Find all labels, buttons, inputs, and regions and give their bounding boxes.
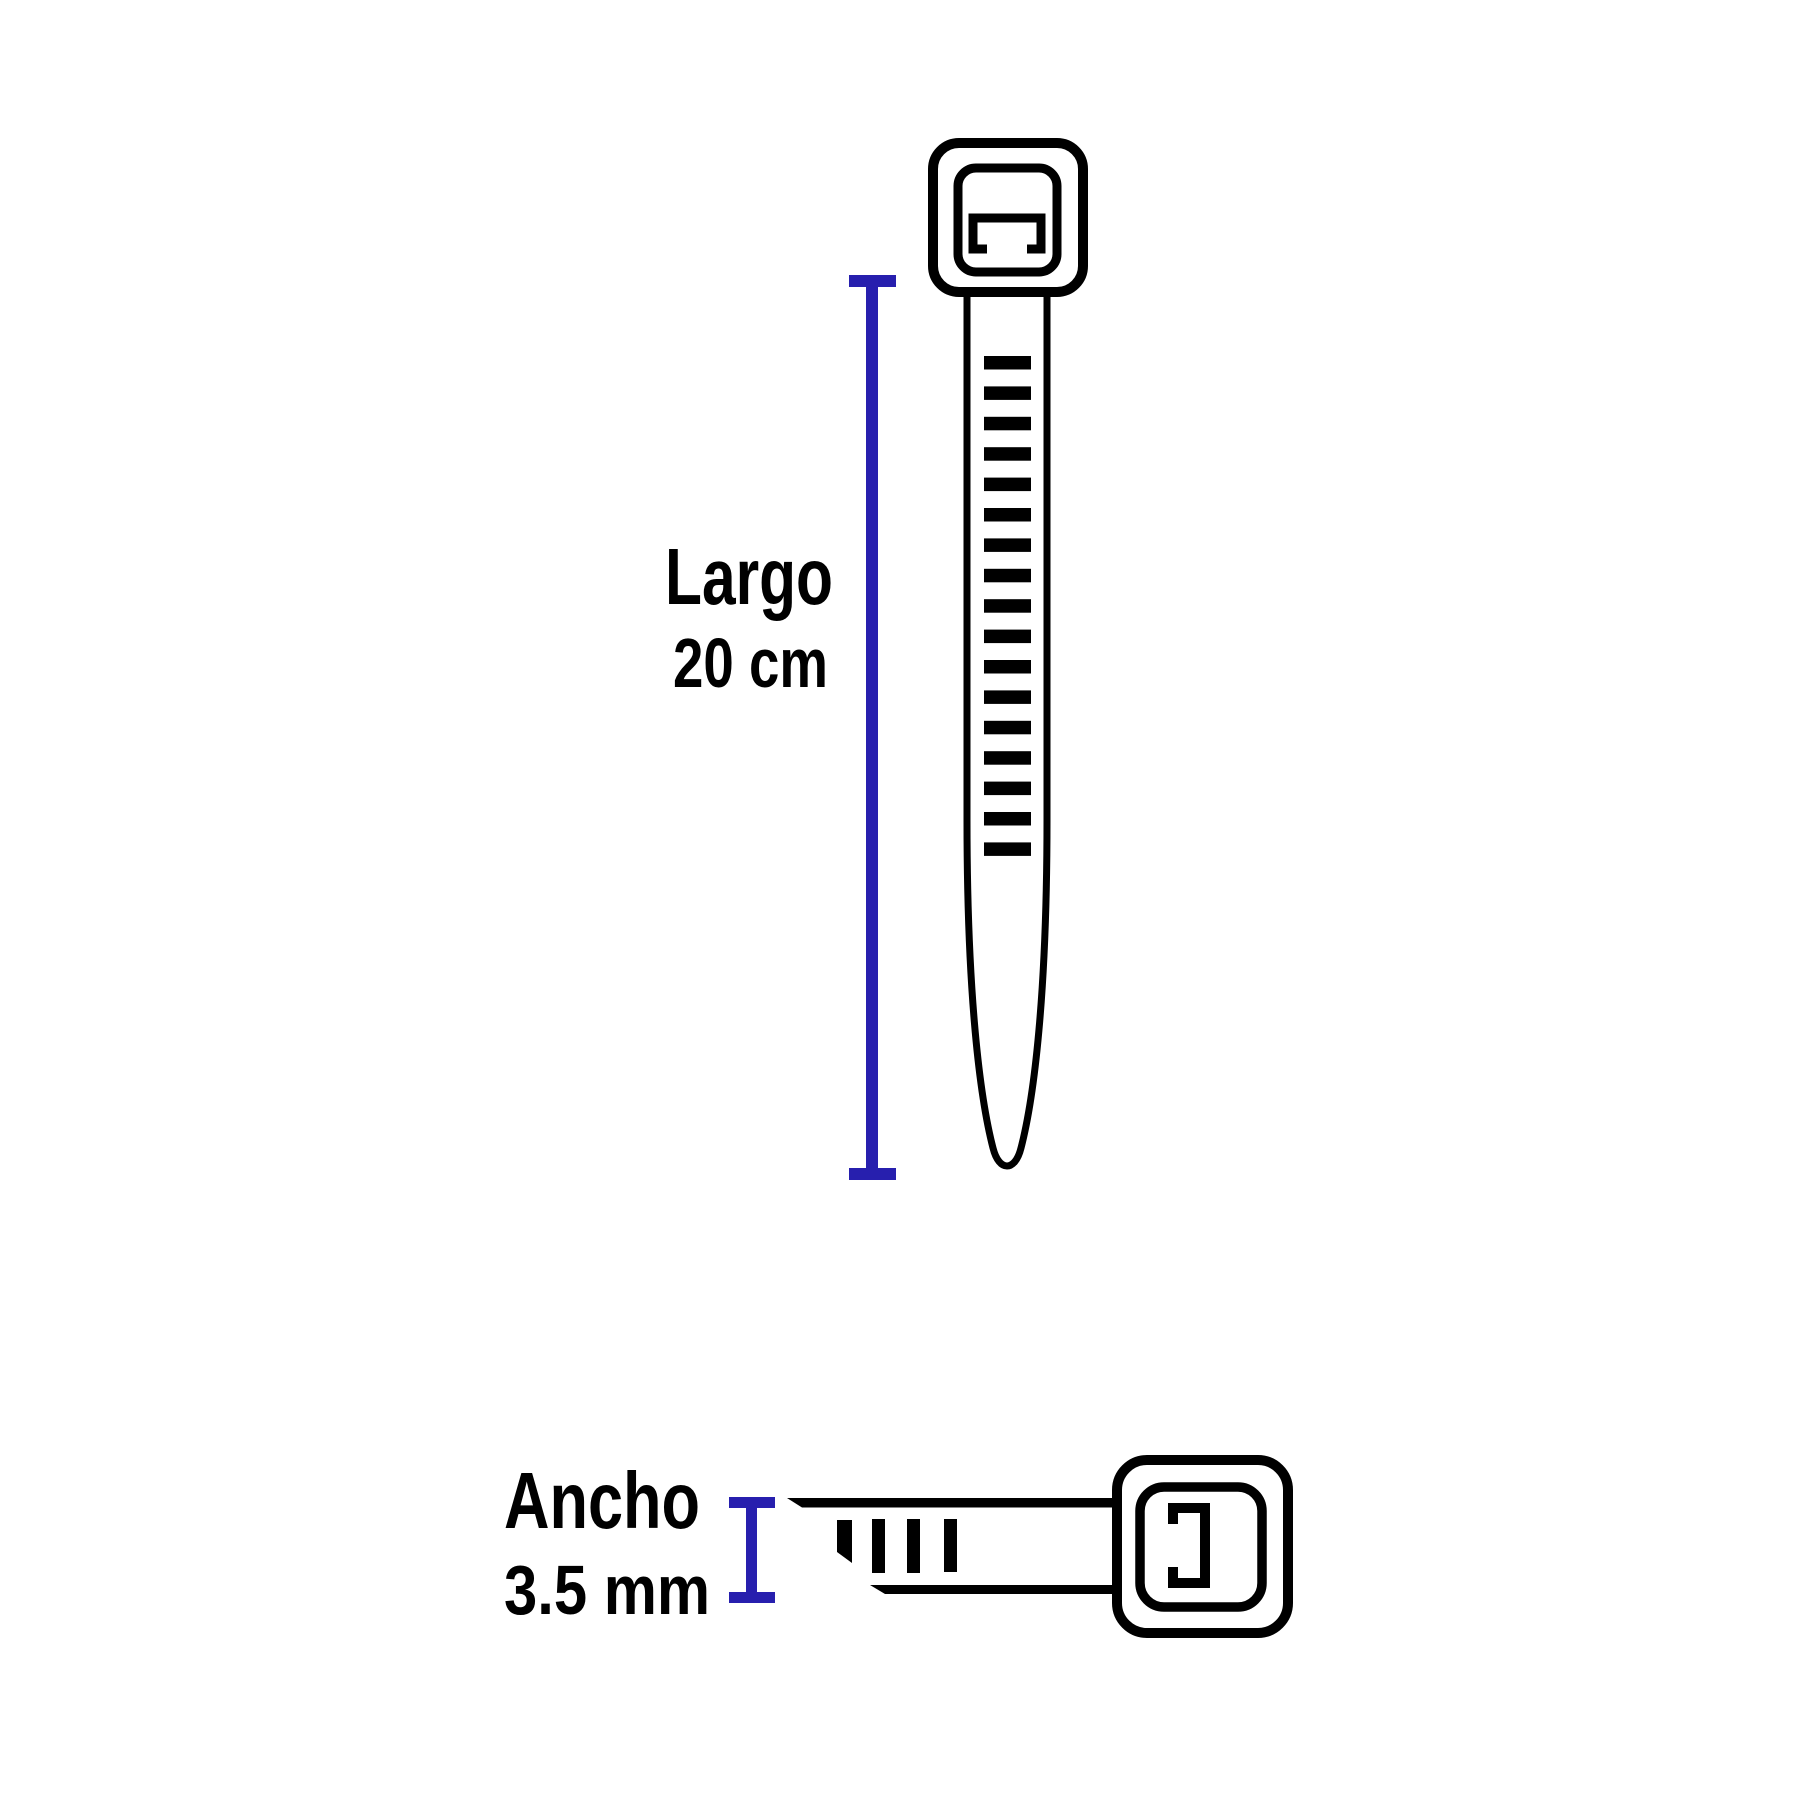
side-strap-shapes (787, 1498, 1122, 1594)
side-tooth (907, 1519, 920, 1573)
tooth (984, 508, 1031, 522)
tooth (984, 447, 1031, 461)
side-tooth (944, 1519, 957, 1572)
tooth (984, 538, 1031, 552)
tooth (984, 630, 1031, 644)
tooth (984, 812, 1031, 826)
diagram-canvas: Largo 20 cm Ancho 3.5 mm (0, 0, 1800, 1800)
dimension-line-vertical (866, 275, 878, 1180)
tooth (984, 690, 1031, 704)
tooth (984, 386, 1031, 400)
tooth (984, 599, 1031, 613)
dimension-cap-bottom (729, 1592, 775, 1603)
tooth (984, 478, 1031, 492)
width-dimension-label: Ancho (504, 1456, 700, 1545)
length-dimension-value: 20 cm (673, 624, 828, 702)
dimension-line-vertical (746, 1497, 757, 1603)
length-dimension-label: Largo (665, 532, 833, 621)
cable-tie-top-outlines (933, 143, 1083, 1166)
tie-strap-teeth (984, 356, 1031, 856)
tooth (984, 842, 1031, 856)
tooth (984, 751, 1031, 765)
cable-tie-diagram: Largo 20 cm Ancho 3.5 mm (0, 0, 1800, 1800)
side-head-pawl-slot-icon (1173, 1508, 1205, 1583)
side-strap-top-edge (787, 1498, 1122, 1508)
dimension-cap-bottom (849, 1168, 896, 1180)
side-head-outlines (1117, 1460, 1288, 1633)
tooth (984, 417, 1031, 431)
length-dimension-line-icon (849, 275, 896, 1180)
width-dimension-line-icon (729, 1497, 775, 1603)
width-dimension-value: 3.5 mm (504, 1551, 710, 1629)
side-tooth (872, 1519, 885, 1573)
side-strap-bottom-edge (870, 1585, 1122, 1594)
cable-tie-top-view (933, 143, 1083, 1166)
cable-tie-side-view (787, 1460, 1288, 1633)
tooth (984, 660, 1031, 674)
tooth (984, 569, 1031, 583)
tooth (984, 356, 1031, 370)
tooth (984, 721, 1031, 735)
tooth (984, 782, 1031, 796)
tie-head-pawl-slot-icon (973, 218, 1041, 249)
side-tooth-slanted (837, 1520, 852, 1563)
